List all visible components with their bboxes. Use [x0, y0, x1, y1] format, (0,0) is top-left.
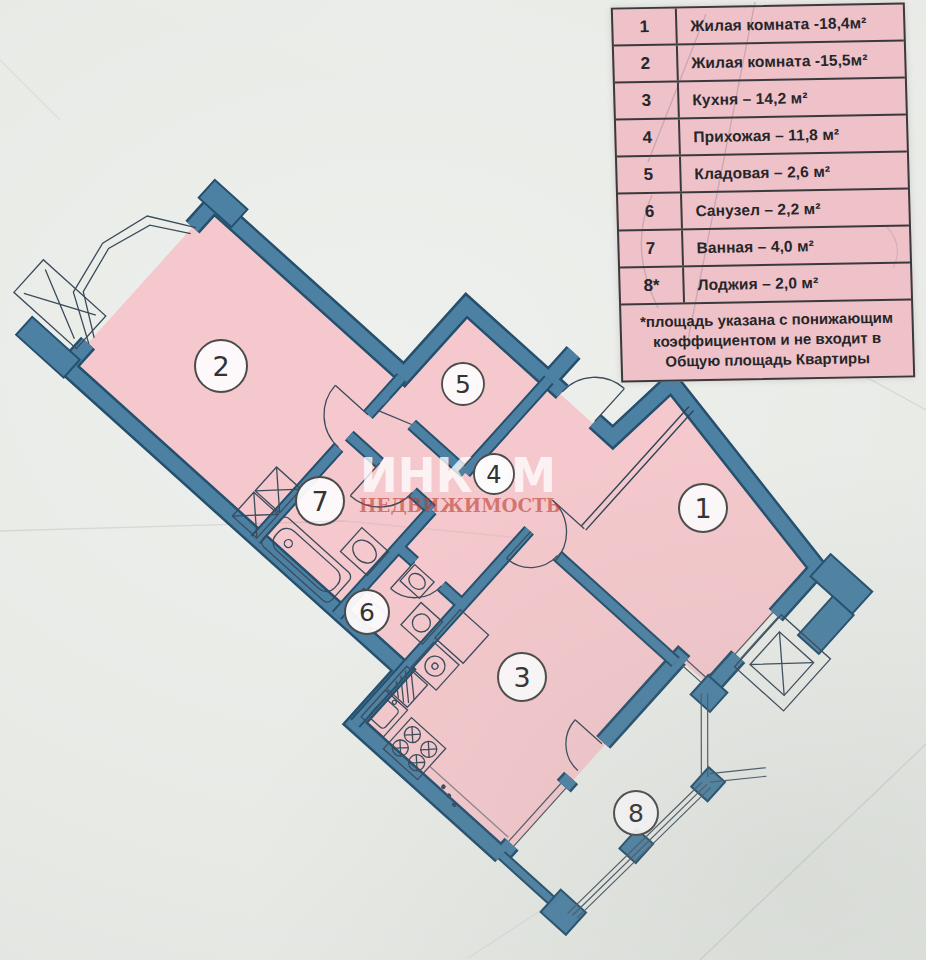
legend-room-label: Кухня – 14,2 м² [679, 87, 905, 109]
legend-row: 8* Лоджия – 2,0 м² [620, 263, 911, 305]
watermark: ИНКОМ НЕДВИЖИМОСТЬ [359, 447, 561, 516]
room-badge-1: 1 [679, 484, 727, 532]
watermark-subtitle: НЕДВИЖИМОСТЬ [359, 494, 561, 516]
room-badge-4: 4 [474, 454, 514, 494]
legend-row: 4 Прихожая – 11,8 м² [616, 115, 907, 157]
legend-row: 5 Кладовая – 2,6 м² [617, 152, 908, 194]
legend-room-number: 5 [617, 156, 682, 192]
legend-row: 2 Жилая комната -15,5м² [614, 42, 905, 84]
legend-room-number: 3 [615, 82, 680, 118]
legend-footnote: *площадь указана с понижающим коэффициен… [621, 300, 913, 380]
svg-text:4: 4 [486, 461, 501, 489]
legend-row: 3 Кухня – 14,2 м² [615, 79, 906, 121]
room-badge-7: 7 [296, 477, 344, 525]
legend-room-number: 8* [620, 267, 685, 303]
legend-room-number: 2 [614, 45, 679, 81]
legend-room-label: Ванная – 4,0 м² [683, 235, 909, 257]
legend-room-label: Жилая комната -18,4м² [677, 13, 903, 35]
legend-room-label: Лоджия – 2,0 м² [684, 272, 910, 294]
room-legend-table: 1 Жилая комната -18,4м² 2 Жилая комната … [611, 2, 915, 382]
legend-room-number: 7 [619, 230, 684, 266]
legend-row: 7 Ванная – 4,0 м² [619, 226, 910, 268]
svg-text:3: 3 [513, 662, 530, 693]
legend-room-label: Жилая комната -15,5м² [678, 50, 904, 72]
room-badge-2: 2 [195, 340, 247, 392]
svg-text:1: 1 [694, 493, 711, 524]
legend-room-label: Кладовая – 2,6 м² [681, 161, 907, 183]
legend-room-label: Санузел – 2,2 м² [682, 198, 908, 220]
legend-row: 1 Жилая комната -18,4м² [613, 5, 904, 47]
loggia-spur-wall-fill [502, 855, 559, 907]
svg-text:6: 6 [359, 598, 375, 627]
legend-room-number: 4 [616, 119, 681, 155]
svg-text:8: 8 [628, 799, 644, 828]
room-badge-6: 6 [345, 590, 389, 634]
svg-text:2: 2 [212, 351, 229, 382]
legend-row: 6 Санузел – 2,2 м² [618, 189, 909, 231]
legend-room-number: 1 [613, 8, 678, 44]
legend-room-label: Прихожая – 11,8 м² [680, 124, 906, 146]
floorplan-photo: ИНКОМ НЕДВИЖИМОСТЬ 1 2 3 4 5 [0, 0, 926, 960]
svg-text:5: 5 [455, 370, 471, 399]
room-badge-5: 5 [442, 363, 484, 405]
svg-text:7: 7 [311, 486, 328, 517]
room-badge-3: 3 [498, 653, 546, 701]
legend-room-number: 6 [618, 193, 683, 229]
room-badge-8: 8 [614, 791, 658, 835]
